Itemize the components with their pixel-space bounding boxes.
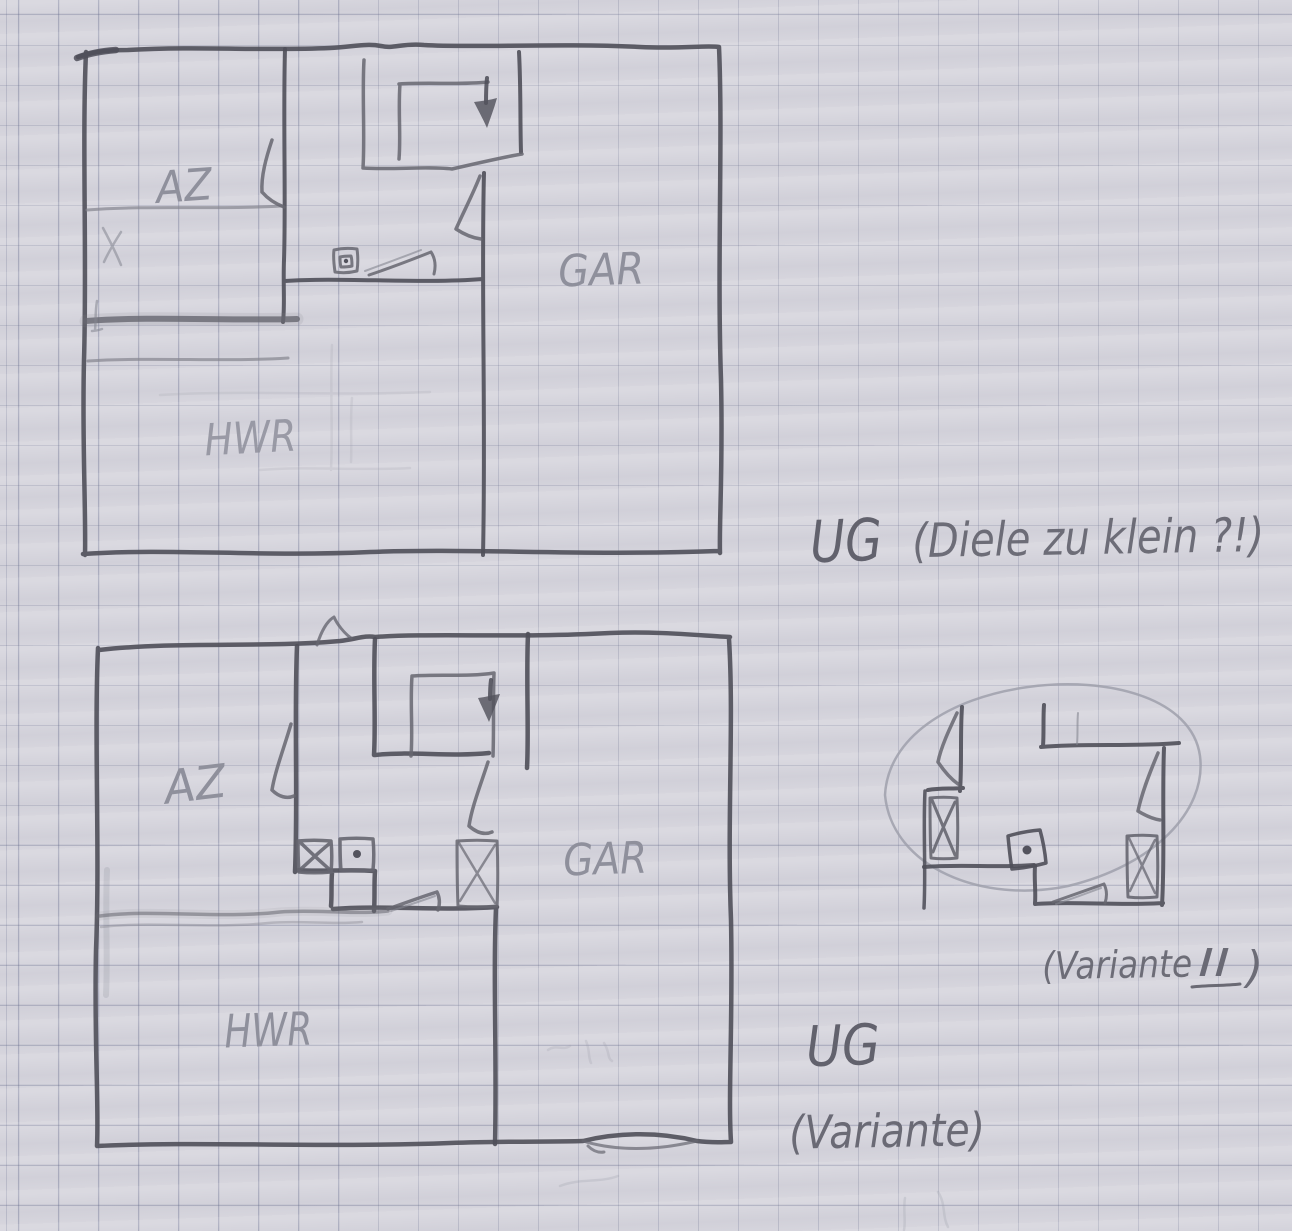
dot-box-dot-detail <box>1023 846 1032 855</box>
plan-bottom-wall-double-strokes <box>583 1141 697 1152</box>
plan-top-partition-lines <box>87 206 288 361</box>
detail-caption-suffix: ) <box>1243 942 1263 993</box>
crossed-box-symbol-left <box>298 840 332 873</box>
graph-paper-sheet: AZ GAR HWR UG (Diele zu klein ?!) AZ GAR… <box>0 0 1292 1231</box>
floor-plan-top: AZ GAR HWR <box>77 45 722 555</box>
crossed-box-detail-left <box>930 797 958 859</box>
room-label-gar-top: GAR <box>557 243 645 297</box>
plan-top-inner-walls <box>283 49 521 555</box>
drain-symbol-dot-top <box>344 259 348 263</box>
plan-bottom-wavy-second-stroke <box>101 922 362 927</box>
door-swing-detail-left <box>938 713 958 784</box>
floorplan-sketch: AZ GAR HWR UG (Diele zu klein ?!) AZ GAR… <box>0 0 1292 1231</box>
stair-down-arrow-icon <box>474 98 497 128</box>
plan-top-staircase <box>363 60 522 169</box>
room-label-hwr-top: HWR <box>203 411 298 467</box>
room-label-az-top: AZ <box>152 159 215 214</box>
room-label-hwr-bottom: HWR <box>223 1001 313 1058</box>
plan-bottom-erased-ghost-marks <box>548 1041 612 1063</box>
floor-caption-bottom: UG <box>805 1013 881 1081</box>
floor-plan-bottom: AZ GAR HWR <box>96 617 732 1152</box>
plan-bottom-outer-walls <box>96 633 732 1146</box>
dot-box-dot-bottom <box>353 850 361 858</box>
crossed-box-detail-right-x <box>1129 838 1155 893</box>
crossed-box-tall-x <box>459 843 495 903</box>
door-swing-detail-right <box>1138 753 1160 820</box>
stair-down-arrow-shaft-top <box>486 78 487 103</box>
door-swing-garage-top <box>456 176 481 239</box>
room-label-gar-bottom: GAR <box>562 833 648 887</box>
room-label-az-bottom: AZ <box>158 753 230 815</box>
caption-top-plan: UG (Diele zu klein ?!) <box>809 506 1265 576</box>
door-swing-az-top <box>262 140 284 207</box>
detail-sketch-left-outer-wall <box>924 791 925 908</box>
door-swing-az-bottom <box>272 724 294 797</box>
door-swing-garage-bottom <box>469 762 492 833</box>
floor-caption-bottom-note: (Variante) <box>789 1102 986 1159</box>
detail-caption-numeral: II <box>1198 941 1230 985</box>
caption-bottom-plan: UG (Variante) <box>789 1013 986 1160</box>
plan-bottom-left-wall-smear <box>106 870 107 995</box>
stair-down-arrow-icon-bottom <box>478 694 500 722</box>
floor-caption-top: UG <box>809 506 883 576</box>
plan-top-smudged-wall <box>86 319 297 321</box>
plan-bottom-staircase <box>411 673 494 756</box>
detail-sketch-faint-stub <box>1077 713 1078 744</box>
detail-sketch: (Variante II ) <box>885 684 1263 993</box>
floor-caption-top-note: (Diele zu klein ?!) <box>912 508 1265 569</box>
detail-caption-prefix: (Variante <box>1042 942 1193 989</box>
ramp-symbol-top <box>369 252 435 275</box>
bottom-edge-faint-scribbles <box>560 1176 948 1230</box>
